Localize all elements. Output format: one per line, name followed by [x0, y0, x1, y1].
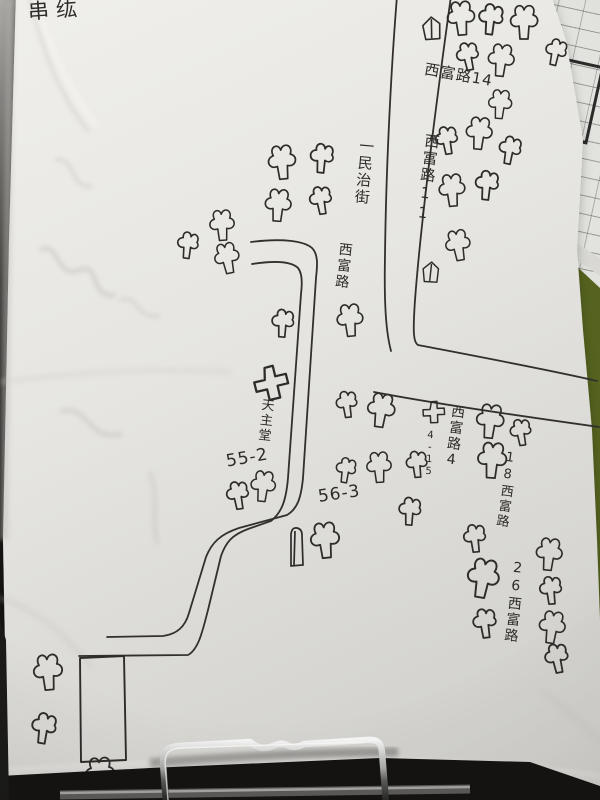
map-drawing — [0, 0, 600, 800]
photo-of-hand-drawn-map: 39219 113 存法案 台灣 14 15 16 17 — [0, 0, 600, 800]
